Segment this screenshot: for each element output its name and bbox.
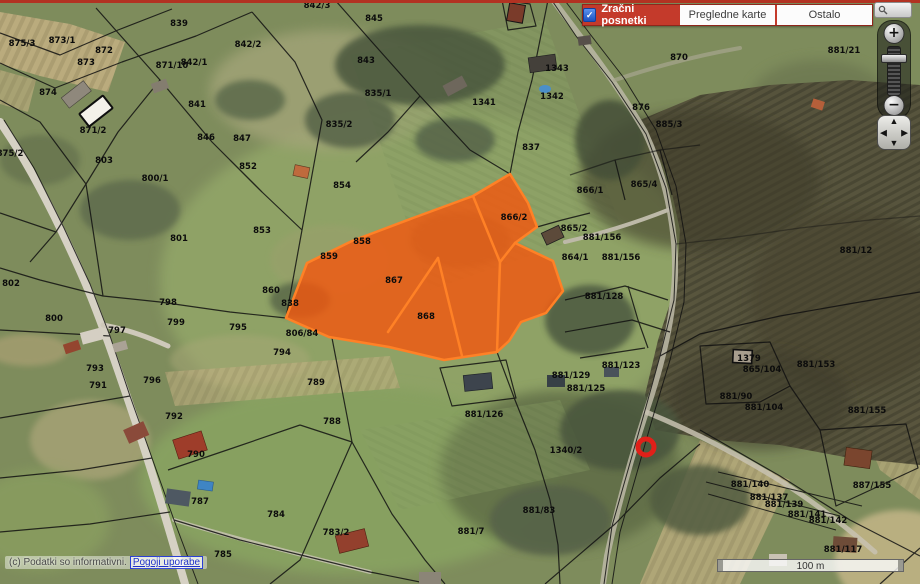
- map-border-line: [0, 0, 920, 3]
- terms-of-use-link[interactable]: Pogoji uporabe: [130, 556, 203, 569]
- copyright-bar: (c) Podatki so informativni.Pogoji upora…: [5, 556, 207, 569]
- map-canvas[interactable]: [0, 0, 920, 584]
- zoom-out-button[interactable]: −: [884, 95, 905, 116]
- pan-right-arrow-icon[interactable]: ▶: [901, 128, 908, 137]
- pan-up-arrow-icon[interactable]: ▲: [890, 117, 899, 126]
- zoom-in-button[interactable]: +: [884, 23, 905, 44]
- pan-pad: ▲ ▼ ◀ ▶: [877, 115, 911, 150]
- tab-aerial-label: Zračni posnetki: [601, 3, 678, 27]
- scale-label: 100 m: [797, 561, 825, 572]
- tab-overview-maps-label: Pregledne karte: [689, 9, 767, 21]
- map-viewer: 875/3873/1872873874875/2871/2871/1083984…: [0, 0, 920, 584]
- tab-other-label: Ostalo: [809, 9, 841, 21]
- pan-down-arrow-icon[interactable]: ▼: [890, 139, 899, 148]
- search-input[interactable]: [888, 4, 908, 16]
- checkbox-checked-icon[interactable]: ✓: [583, 8, 596, 22]
- scale-bar: 100 m: [717, 559, 904, 572]
- aerial-basemap: [0, 0, 920, 584]
- search-icon: [878, 5, 888, 15]
- pan-left-arrow-icon[interactable]: ◀: [880, 128, 887, 137]
- copyright-text: (c) Podatki so informativni.: [9, 557, 127, 568]
- zoom-slider-handle[interactable]: [881, 54, 907, 63]
- tab-other[interactable]: Ostalo: [777, 5, 872, 25]
- layer-tabs: ✓ Zračni posnetki Pregledne karte Ostalo: [582, 4, 873, 26]
- tab-aerial[interactable]: ✓ Zračni posnetki: [583, 5, 678, 25]
- tab-overview-maps[interactable]: Pregledne karte: [680, 5, 775, 25]
- search-box[interactable]: [874, 2, 912, 18]
- zoom-control: + −: [877, 20, 911, 119]
